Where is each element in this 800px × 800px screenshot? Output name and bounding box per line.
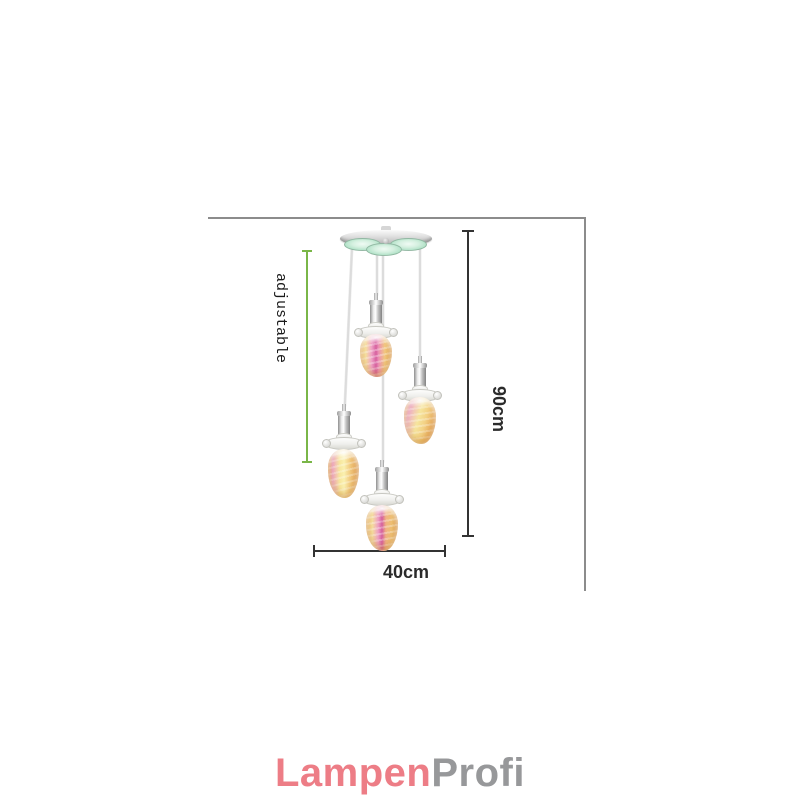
brand-logo-part1: Lampen [275, 751, 431, 795]
pendant-shade [360, 334, 392, 377]
pendant-lamp [398, 356, 442, 456]
pendant-cord [344, 248, 353, 406]
pendant-shade [328, 449, 359, 498]
ceiling-plate-pin [383, 238, 389, 244]
pendant-shade [366, 505, 398, 551]
frame-border-top [208, 217, 585, 219]
pendant-shade [404, 397, 436, 444]
width-dimension-label: 40cm [356, 562, 456, 582]
frame-border-right [584, 217, 586, 591]
adjustable-label: adjustable [272, 268, 288, 368]
brand-logo-part2: Profi [431, 751, 525, 795]
height-dimension-line [467, 230, 469, 537]
ceiling-plate [340, 226, 432, 260]
pendant-lamp [354, 293, 398, 393]
pendant-cord [419, 248, 421, 358]
green-glass-disc [366, 243, 402, 256]
height-dimension-label: 90cm [489, 359, 509, 459]
product-dimension-diagram: adjustable 90cm 40cm [0, 0, 800, 800]
brand-logo: LampenProfi [0, 751, 800, 796]
adjustable-range-line [306, 250, 308, 463]
pendant-lamp [360, 460, 404, 560]
